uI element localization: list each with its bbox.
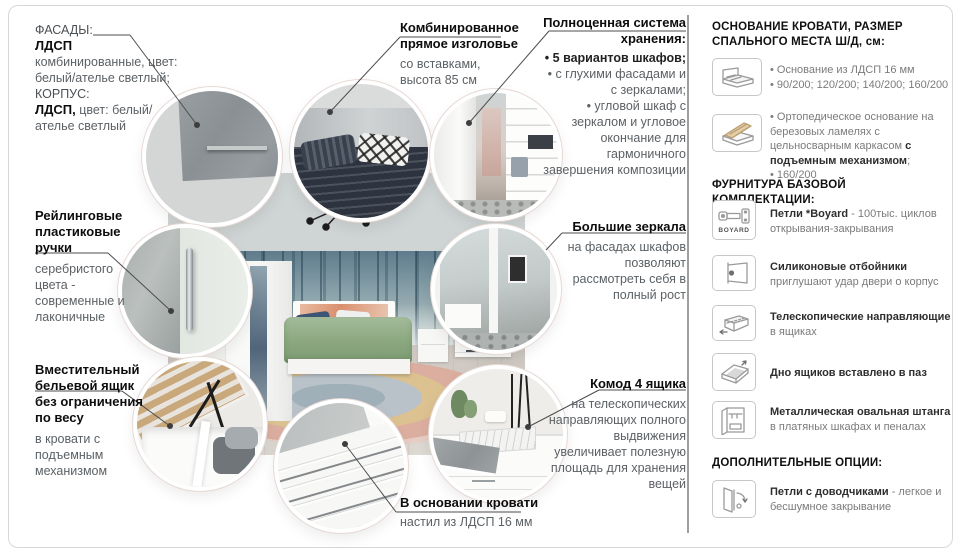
- soft-close-item: Петли с доводчиками - легкое и бесшумное…: [770, 485, 956, 514]
- drawer-bottom-icon: [712, 353, 756, 391]
- bed-duvet: [284, 317, 412, 363]
- bed-base-body: настил из ЛДСП 16 мм: [400, 514, 560, 530]
- mirror-door: [476, 93, 506, 217]
- storage-bullet: • угловой шкаф с зеркалом и угловое окон…: [540, 98, 686, 178]
- rod-icon: [712, 401, 756, 439]
- chest-body: на телескопических направляющих полного …: [545, 396, 686, 492]
- linen-drawer-body: в кровати с подъемным механизмом: [35, 431, 135, 479]
- storage-callout: Полноценная система хранения: • 5 вариан…: [540, 15, 686, 178]
- lift-bed-icon: [712, 114, 762, 152]
- chest-title: Комод 4 ящика: [545, 376, 686, 392]
- rod-item: Металлическая овальная штанга в платяных…: [770, 405, 956, 434]
- headboard-body: со вставками, высота 85 см: [400, 56, 522, 88]
- hinge-item: Петли *Boyard - 100тыс. циклов открывани…: [770, 207, 956, 236]
- options-section-header: ДОПОЛНИТЕЛЬНЫЕ ОПЦИИ:: [712, 456, 952, 471]
- mirror-wardrobe-photo-circle: [431, 224, 561, 354]
- boyard-label: BOYARD: [718, 227, 749, 234]
- product-infographic: ФАСАДЫ: ЛДСП комбинированные, цвет: белы…: [0, 0, 963, 557]
- bed-base-callout: В основании кровати настил из ЛДСП 16 мм: [400, 495, 560, 530]
- soft-close-hinge-icon: [712, 480, 756, 518]
- drawer-bottom-item: Дно ящиков вставлено в паз: [770, 366, 956, 381]
- headboard-photo-circle: [290, 80, 432, 222]
- ldsp-bold2: ЛДСП,: [35, 102, 76, 117]
- linen-drawer-note: Вместительный бельевой ящик без ограниче…: [35, 362, 159, 479]
- bumper-item: Силиконовые отбойникиприглушают удар две…: [770, 260, 956, 289]
- bed-base-item1: • Основание из ЛДСП 16 мм • 90/200; 120/…: [770, 63, 956, 92]
- bed-base-section-header: ОСНОВАНИЕ КРОВАТИ, РАЗМЕР СПАЛЬНОГО МЕСТ…: [712, 20, 940, 50]
- chest-callout: Комод 4 ящика на телескопических направл…: [545, 376, 686, 492]
- slides-icon: [712, 305, 756, 341]
- handles-body: серебристого цвета - современные и лакон…: [35, 261, 147, 325]
- slides-item: Телескопические направляющиев ящиках: [770, 310, 956, 339]
- bed-base-photo-circle: [274, 399, 408, 533]
- headboard-title: Комбинированное прямое изголовье: [400, 20, 522, 52]
- mirror-panel: [498, 228, 549, 350]
- wardrobe-door: [434, 93, 476, 217]
- bed-base: [288, 359, 410, 374]
- bumper-icon: [712, 255, 756, 291]
- bed-base-item2: • Ортопедическое основание на березовых …: [770, 110, 958, 183]
- storage-bullet: • с глухими фасадами и с зеркалами;: [540, 66, 686, 98]
- concrete-panel: [178, 87, 282, 181]
- ldsp-bold: ЛДСП: [35, 38, 72, 53]
- bed-base-title: В основании кровати: [400, 495, 560, 511]
- linen-drawer-title: Вместительный бельевой ящик без ограниче…: [35, 362, 159, 426]
- panel-handle: [207, 146, 268, 150]
- mirror-panel: [440, 228, 489, 350]
- mirrors-body: на фасадах шкафов позволяют рассмотреть …: [555, 239, 686, 303]
- mirrors-title: Большие зеркала: [555, 219, 686, 235]
- handles-note: Рейлинговые пластиковые ручки серебристо…: [35, 208, 147, 325]
- storage-bullet: • 5 вариантов шкафов;: [540, 50, 686, 66]
- storage-title: Полноценная система хранения:: [540, 15, 686, 47]
- facades-label: ФАСАДЫ:: [35, 23, 93, 37]
- korpus-label: КОРПУС:: [35, 87, 90, 101]
- headboard-callout: Комбинированное прямое изголовье со вста…: [400, 20, 522, 88]
- materials-note: ФАСАДЫ: ЛДСП комбинированные, цвет: белы…: [35, 22, 187, 134]
- hinge-icon: BOYARD: [712, 200, 756, 240]
- bed-icon: [712, 58, 762, 96]
- rail-handle: [186, 248, 193, 331]
- mirrors-callout: Большие зеркала на фасадах шкафов позвол…: [555, 219, 686, 303]
- pillow: [357, 132, 411, 167]
- handles-title: Рейлинговые пластиковые ручки: [35, 208, 147, 256]
